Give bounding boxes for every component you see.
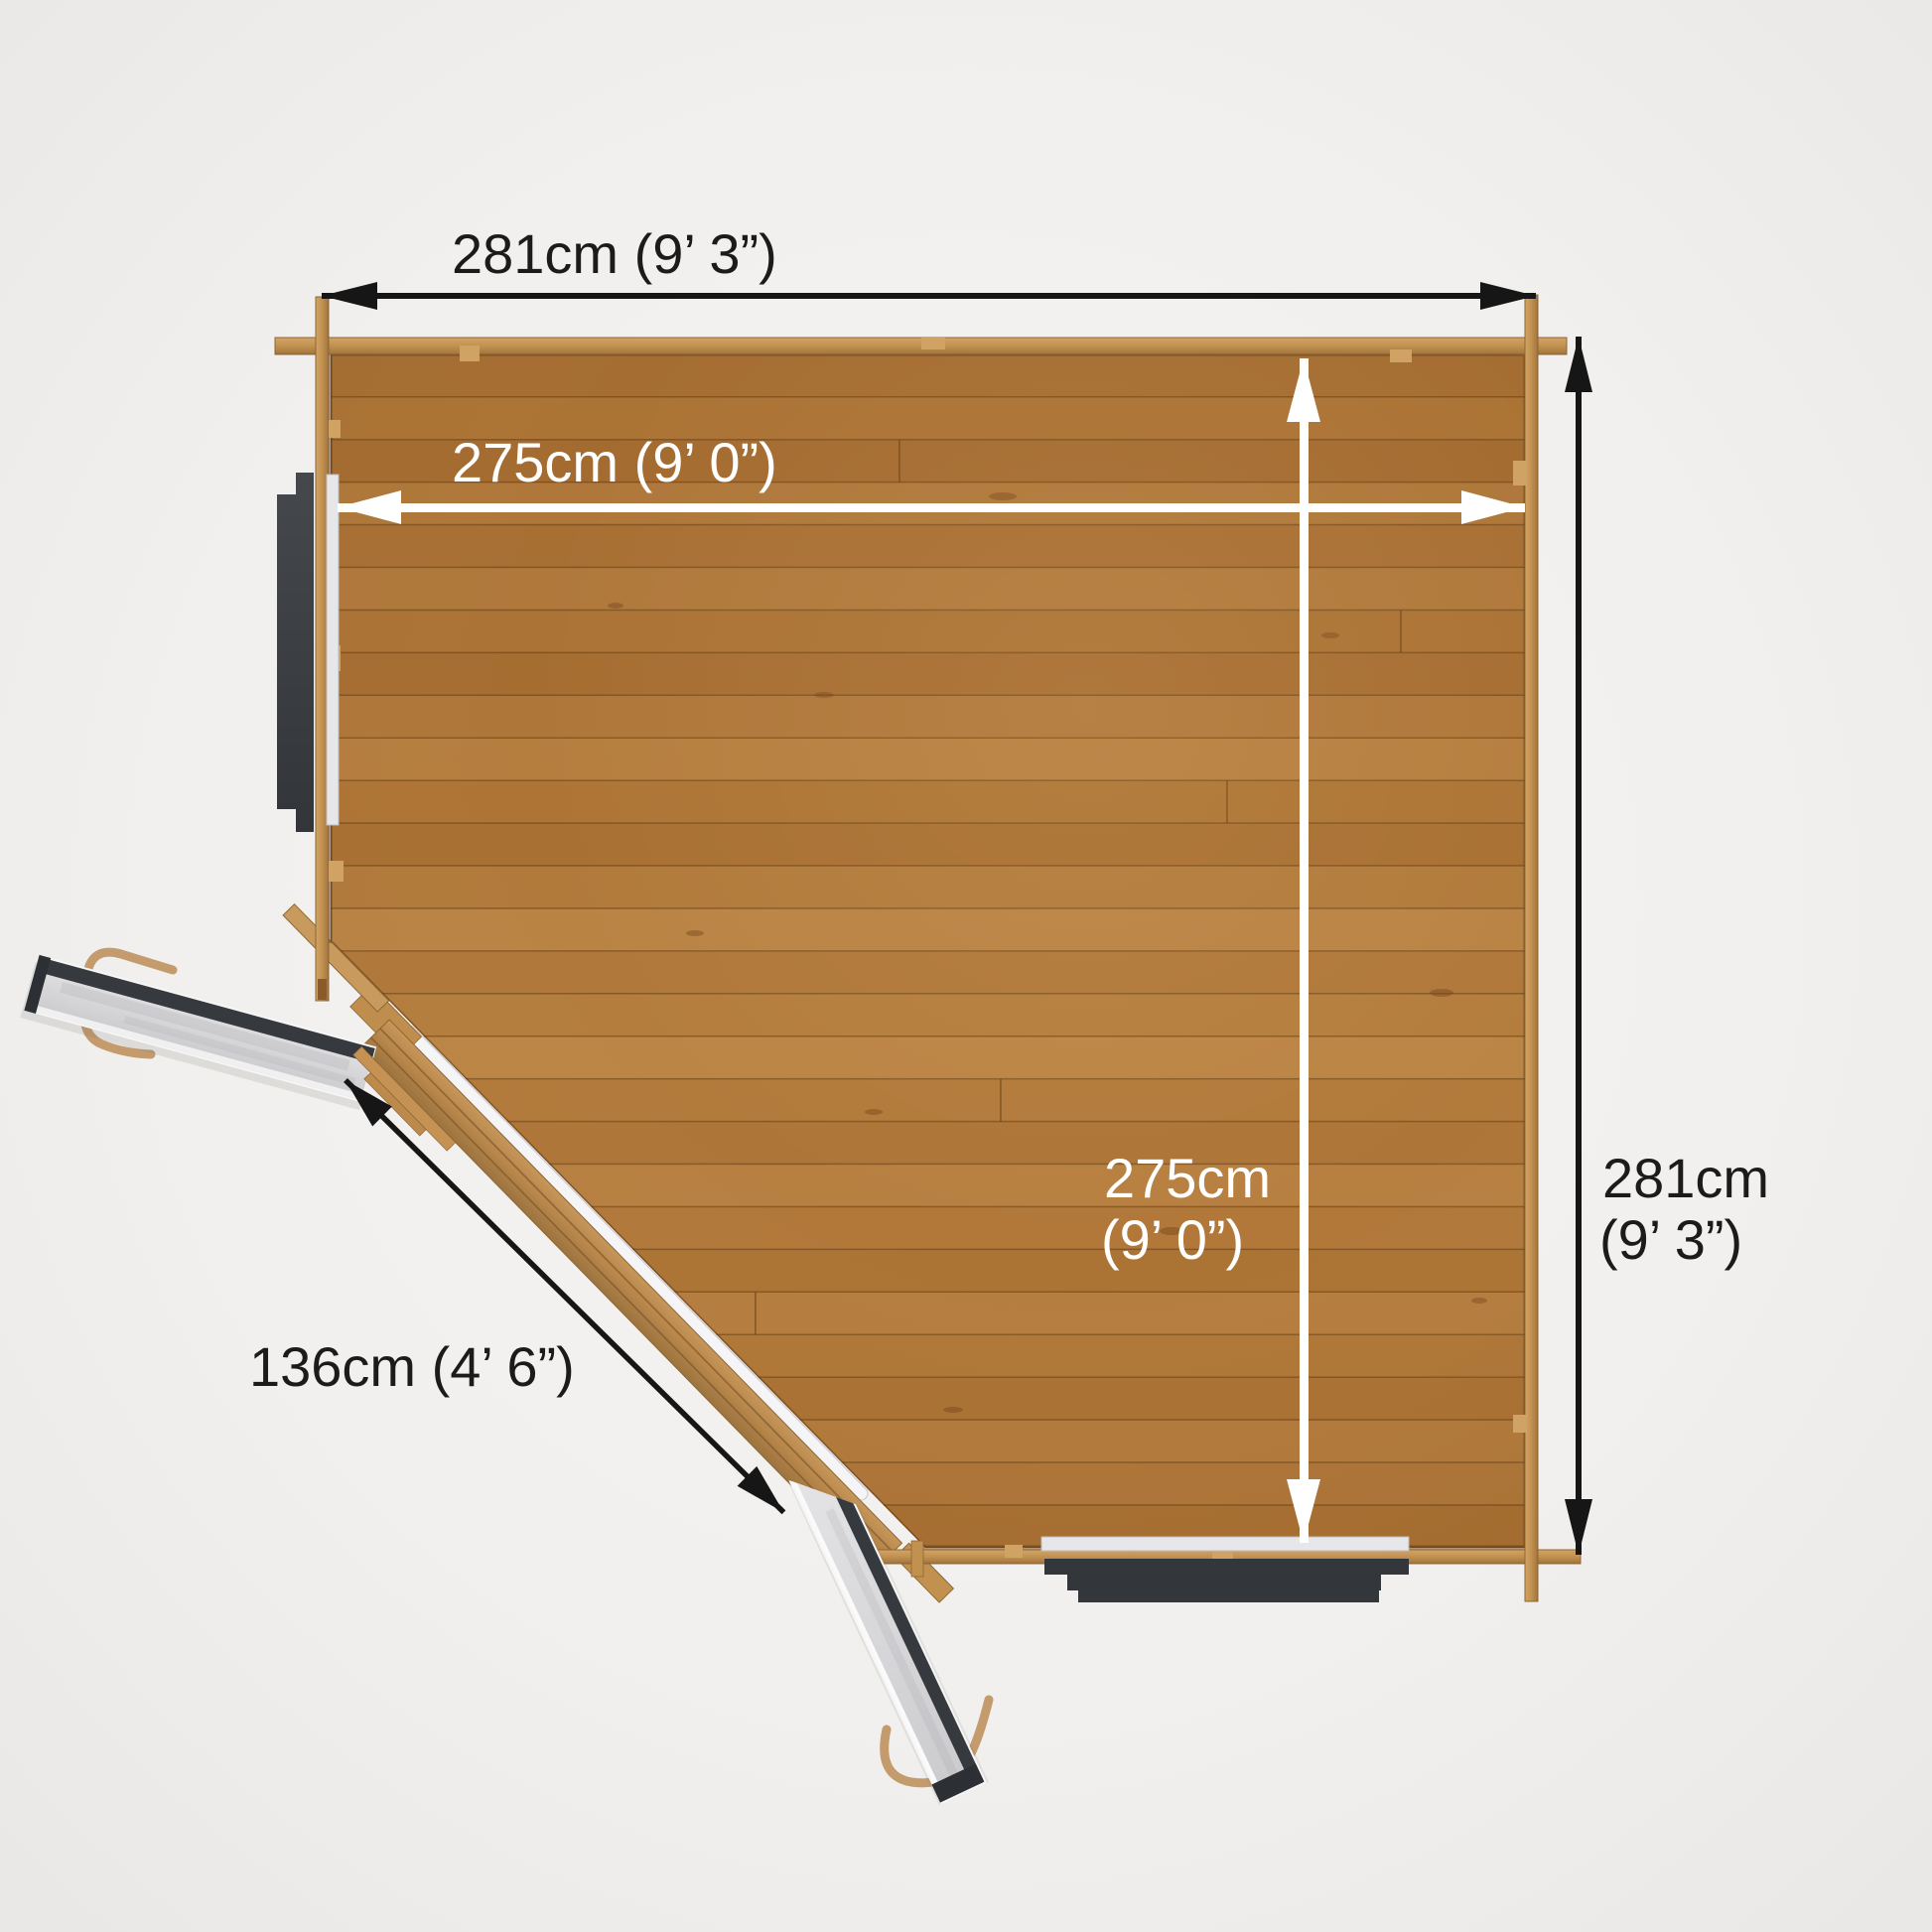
svg-text:(9’ 0”): (9’ 0”) bbox=[1101, 1208, 1244, 1271]
svg-text:275cm: 275cm bbox=[1104, 1147, 1271, 1209]
svg-text:(9’ 3”): (9’ 3”) bbox=[1599, 1208, 1742, 1271]
svg-text:275cm (9’ 0”): 275cm (9’ 0”) bbox=[452, 431, 777, 493]
svg-text:281cm: 281cm bbox=[1602, 1147, 1769, 1209]
svg-text:281cm (9’ 3”): 281cm (9’ 3”) bbox=[452, 222, 777, 285]
svg-text:136cm (4’ 6”): 136cm (4’ 6”) bbox=[249, 1335, 575, 1398]
